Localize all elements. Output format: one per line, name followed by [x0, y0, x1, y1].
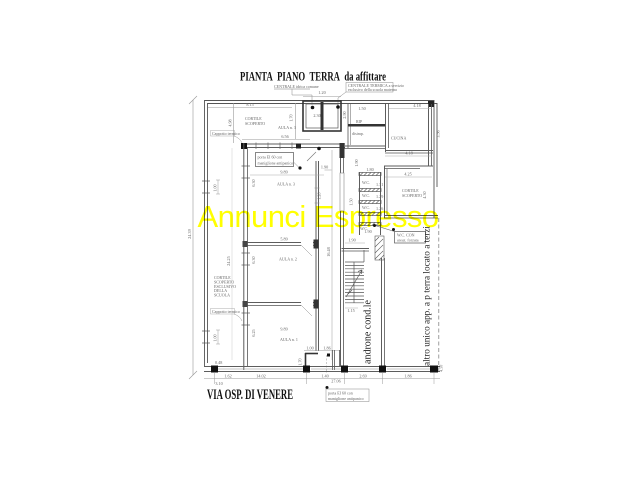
svg-text:RIP: RIP [356, 119, 363, 124]
svg-text:AULA n. 2: AULA n. 2 [279, 257, 297, 262]
svg-text:6.30: 6.30 [251, 256, 256, 263]
svg-text:2.69: 2.69 [359, 374, 366, 379]
svg-text:W.C.: W.C. [362, 193, 370, 198]
svg-text:maniglione antipanico: maniglione antipanico [258, 161, 294, 166]
svg-text:14.02: 14.02 [256, 374, 265, 379]
svg-text:1.90: 1.90 [348, 238, 355, 243]
svg-text:1.86: 1.86 [323, 346, 330, 351]
svg-text:24.25: 24.25 [226, 256, 231, 265]
svg-text:6.56: 6.56 [281, 134, 288, 139]
svg-text:androne cond.le: androne cond.le [363, 300, 374, 364]
svg-text:Cappotto termico: Cappotto termico [212, 131, 240, 136]
svg-text:AULA n. 3: AULA n. 3 [278, 125, 296, 130]
svg-text:2.90: 2.90 [342, 111, 347, 118]
svg-text:3.10: 3.10 [215, 381, 222, 386]
svg-text:CUCINA: CUCINA [391, 136, 406, 141]
svg-text:1.50: 1.50 [358, 106, 365, 111]
svg-text:Annunci Espresso: Annunci Espresso [198, 199, 439, 234]
svg-text:6.25: 6.25 [251, 329, 256, 336]
svg-text:W.C.: W.C. [362, 180, 370, 185]
svg-text:4.18: 4.18 [413, 103, 420, 108]
svg-text:1.90: 1.90 [321, 165, 328, 170]
svg-text:CENTRALE idrica comune: CENTRALE idrica comune [274, 84, 319, 89]
svg-text:0.48: 0.48 [215, 360, 222, 365]
svg-text:SCOPERTO: SCOPERTO [245, 121, 265, 126]
svg-text:2.30: 2.30 [313, 113, 320, 118]
svg-text:1.40: 1.40 [321, 374, 328, 379]
svg-text:1.62: 1.62 [224, 374, 231, 379]
svg-text:SCOPERTO: SCOPERTO [402, 193, 422, 198]
svg-text:1.86: 1.86 [404, 374, 411, 379]
svg-text:PIANTA PIANO TERRA da affit: PIANTA PIANO TERRA da affittare [240, 70, 386, 84]
svg-text:4.25: 4.25 [404, 172, 411, 177]
svg-text:24.39: 24.39 [187, 229, 192, 238]
svg-text:6.30: 6.30 [251, 179, 256, 186]
svg-text:maniglione antipanico: maniglione antipanico [328, 396, 364, 401]
svg-text:8.15: 8.15 [246, 102, 253, 107]
svg-text:areaz. forzata: areaz. forzata [397, 238, 419, 243]
svg-text:AULA n. 3: AULA n. 3 [277, 182, 295, 187]
svg-text:9.89: 9.89 [280, 170, 287, 175]
svg-text:esclusivo della scuola materna: esclusivo della scuola materna [348, 87, 397, 92]
svg-text:1.15: 1.15 [347, 308, 354, 313]
svg-text:AULA n. 1: AULA n. 1 [280, 337, 298, 342]
svg-text:1.00: 1.00 [306, 346, 313, 351]
svg-text:9.89: 9.89 [280, 327, 287, 332]
svg-text:disimp.: disimp. [352, 131, 364, 136]
svg-text:1.00: 1.00 [213, 334, 218, 341]
svg-text:1.90: 1.90 [354, 159, 359, 166]
svg-text:porta EI 60 con: porta EI 60 con [328, 391, 353, 396]
svg-text:4.98: 4.98 [228, 119, 233, 126]
svg-text:Cappotto termico: Cappotto termico [212, 309, 240, 314]
svg-text:27.06: 27.06 [331, 379, 340, 384]
svg-text:16.48: 16.48 [326, 247, 331, 256]
svg-text:1.70: 1.70 [289, 114, 294, 121]
svg-text:1.00: 1.00 [213, 184, 218, 191]
svg-text:5.89: 5.89 [280, 237, 287, 242]
svg-text:1.20: 1.20 [318, 90, 325, 95]
svg-text:4.30: 4.30 [422, 191, 427, 198]
svg-text:4.50: 4.50 [439, 365, 444, 372]
svg-text:1.80: 1.80 [366, 167, 373, 172]
svg-text:VIA OSP. DI VENERE: VIA OSP. DI VENERE [207, 387, 293, 403]
svg-text:1.31: 1.31 [376, 182, 383, 187]
svg-text:1.70: 1.70 [298, 358, 303, 365]
svg-text:porta EI 60 con: porta EI 60 con [258, 155, 283, 160]
svg-text:altro unico app. a p terra loc: altro unico app. a p terra locato a terz… [423, 226, 433, 366]
svg-text:SCUOLA: SCUOLA [214, 293, 230, 298]
svg-text:3.56: 3.56 [436, 130, 441, 137]
